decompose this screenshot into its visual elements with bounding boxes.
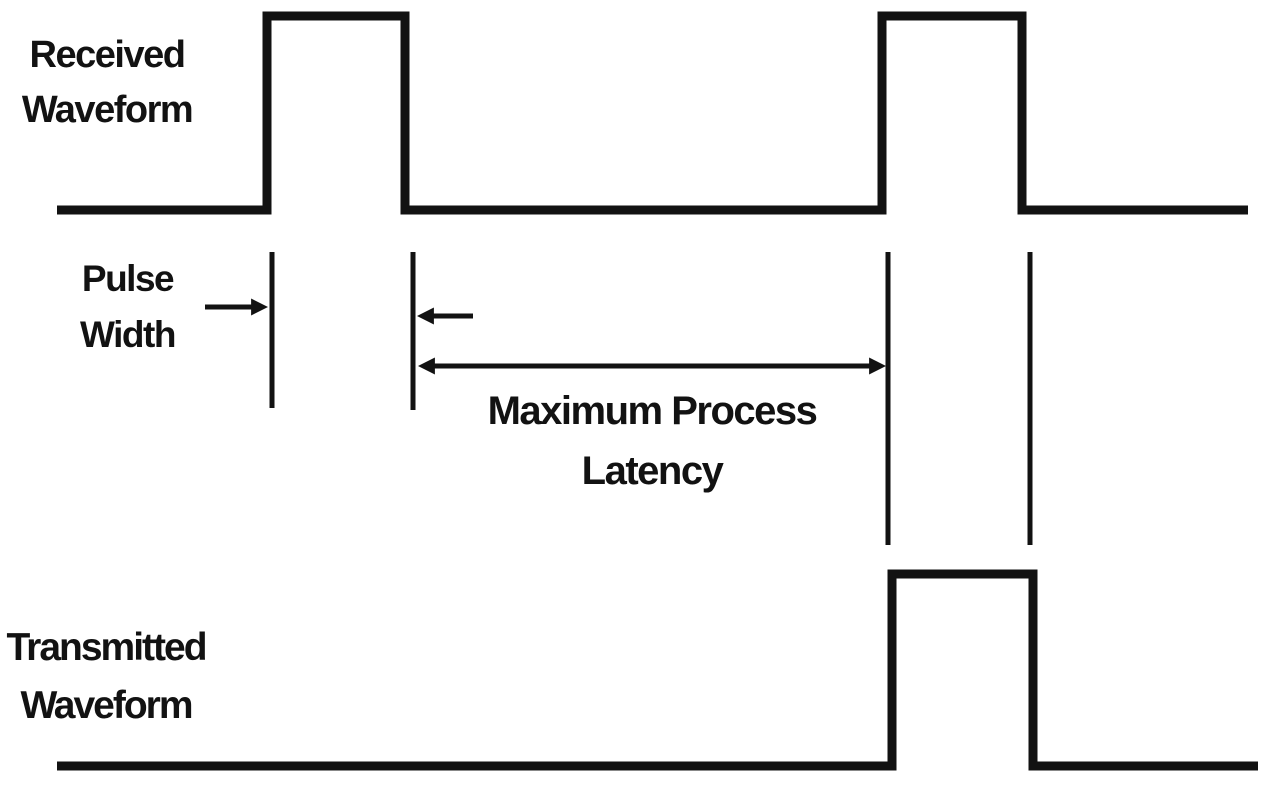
timing-diagram: Received Waveform Pulse Width Maximum Pr… xyxy=(0,0,1266,787)
transmitted-waveform-trace xyxy=(57,574,1258,766)
transmitted-waveform-label: Transmitted Waveform xyxy=(0,619,220,735)
maximum-process-latency-label: Maximum Process Latency xyxy=(448,381,856,501)
received-waveform-label: Received Waveform xyxy=(4,28,210,138)
pulse-width-label: Pulse Width xyxy=(55,251,200,363)
received-waveform-trace xyxy=(57,16,1248,210)
